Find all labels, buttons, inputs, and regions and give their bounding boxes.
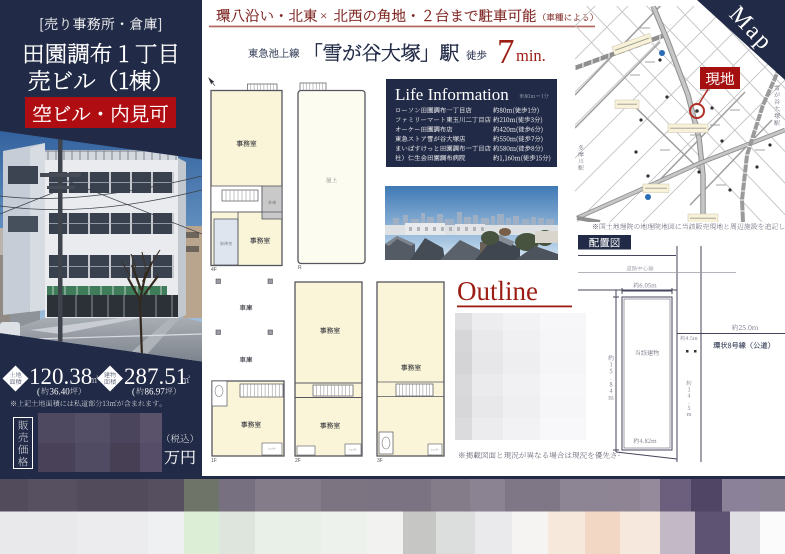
svg-text:(: ( [37, 387, 40, 397]
svg-text:R: R [298, 265, 302, 271]
svg-text:4F: 4F [211, 267, 217, 273]
svg-text:1F: 1F [211, 458, 217, 464]
svg-text:3F: 3F [377, 458, 383, 464]
svg-text:Outline: Outline [457, 278, 538, 306]
svg-text:287.51: 287.51 [124, 364, 187, 389]
svg-text:×: × [320, 8, 327, 23]
svg-text:2F: 2F [295, 458, 301, 464]
svg-text:min.: min. [516, 46, 546, 65]
svg-text:86.97: 86.97 [145, 387, 166, 397]
svg-text:120.38: 120.38 [29, 364, 92, 389]
svg-text:7: 7 [497, 32, 515, 71]
svg-text:36.40: 36.40 [50, 387, 71, 397]
svg-text:(: ( [132, 387, 135, 397]
